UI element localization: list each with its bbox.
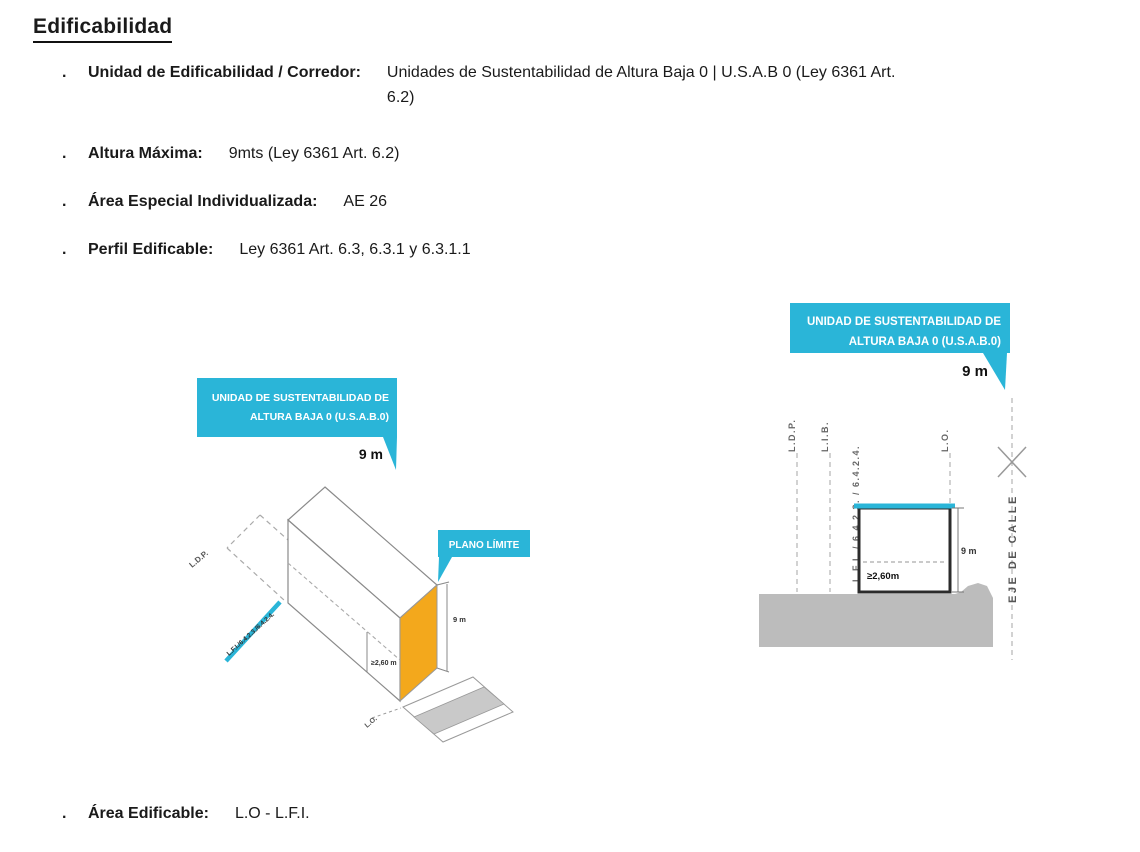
bullet-value-line1: Unidades de Sustentabilidad de Altura Ba…	[387, 64, 895, 81]
lot-extension-dashed-lines	[227, 515, 288, 600]
callout-height-label: 9 m	[359, 446, 383, 462]
ldp-label: L.D.P.	[188, 549, 210, 570]
min-height-label: ≥2,60 m	[371, 660, 397, 667]
iso-diagram: L.D.P. ≥2,60 m L.F.I./6.4.2.3./6.4.2.4. …	[130, 360, 570, 780]
bullet-dot: .	[62, 189, 88, 214]
lo-label: L.O.	[364, 715, 379, 729]
lfi-label: L.F.I./6.4.2.3./6.4.2.4.	[226, 611, 276, 657]
callout-box	[197, 378, 397, 437]
bullet-label: Área Especial Individualizada:	[88, 189, 317, 214]
bullet-value: L.O - L.F.I.	[235, 801, 1112, 826]
bullet-item-unidad: . Unidad de Edificabilidad / Corredor: U…	[62, 60, 1112, 110]
bullet-dot: .	[62, 60, 88, 85]
bullet-label: Área Edificable:	[88, 801, 209, 826]
bullet-item-altura-maxima: . Altura Máxima: 9mts (Ley 6361 Art. 6.2…	[62, 141, 1112, 166]
plano-limite-label: PLANO LÍMITE	[449, 538, 520, 551]
height-dimension-label: 9 m	[961, 546, 977, 556]
callout-line2: ALTURA BAJA 0 (U.S.A.B.0)	[250, 411, 389, 423]
callout-line2: ALTURA BAJA 0 (U.S.A.B.0)	[849, 336, 1001, 348]
bullet-value: Unidades de Sustentabilidad de Altura Ba…	[387, 60, 1112, 110]
bullet-dot: .	[62, 801, 88, 826]
lo-label: L.O.	[940, 429, 950, 453]
bullet-dot: .	[62, 141, 88, 166]
section-diagram: L.D.P. L.I.B. L.F.I. / 6.4.2.3. / 6.4.2.…	[755, 295, 1065, 685]
bullet-value: Ley 6361 Art. 6.3, 6.3.1 y 6.3.1.1	[239, 237, 1112, 262]
min-height-label: ≥2,60m	[867, 571, 899, 582]
bullet-value: 9mts (Ley 6361 Art. 6.2)	[229, 141, 1112, 166]
eje-de-calle-label: EJE DE CALLE	[1007, 494, 1019, 603]
lib-label: L.I.B.	[820, 421, 830, 452]
lo-dashed-line	[372, 708, 401, 718]
bullet-item-area-edificable: . Área Edificable: L.O - L.F.I.	[62, 801, 1112, 826]
callout-tail	[383, 437, 397, 470]
callout-line1: UNIDAD DE SUSTENTABILIDAD DE	[807, 316, 1001, 328]
bullet-label: Altura Máxima:	[88, 141, 203, 166]
plano-limite-callout: PLANO LÍMITE	[438, 530, 530, 582]
bullet-value: AE 26	[343, 189, 1112, 214]
bullet-dot: .	[62, 237, 88, 262]
callout-height-label: 9 m	[962, 363, 988, 380]
callout-tail	[438, 557, 452, 582]
bullet-label: Perfil Edificable:	[88, 237, 213, 262]
callout-line1: UNIDAD DE SUSTENTABILIDAD DE	[212, 392, 389, 404]
bullet-item-perfil: . Perfil Edificable: Ley 6361 Art. 6.3, …	[62, 237, 1112, 262]
page-title: Edificabilidad	[33, 15, 172, 43]
usab-callout: UNIDAD DE SUSTENTABILIDAD DE ALTURA BAJA…	[790, 303, 1010, 390]
usab-callout: UNIDAD DE SUSTENTABILIDAD DE ALTURA BAJA…	[197, 378, 397, 470]
bullet-item-area-especial: . Área Especial Individualizada: AE 26	[62, 189, 1112, 214]
height-dimension-label: 9 m	[453, 615, 466, 624]
height-dimension-lines	[437, 582, 449, 672]
bullet-value-line2: 6.2)	[387, 85, 1112, 110]
bullet-label: Unidad de Edificabilidad / Corredor:	[88, 60, 361, 85]
ldp-label: L.D.P.	[787, 419, 797, 452]
